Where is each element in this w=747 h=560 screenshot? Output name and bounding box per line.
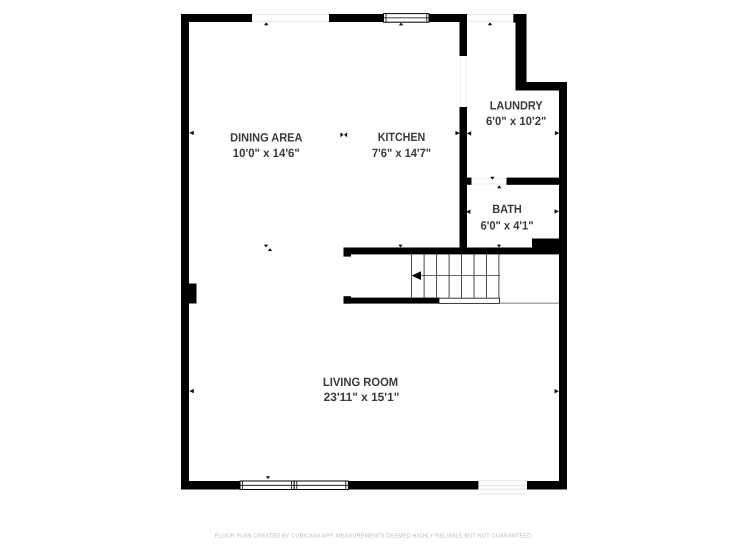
svg-text:10'0" x 14'6": 10'0" x 14'6" [233,146,300,160]
svg-text:FLOOR PLAN CREATED BY CUBICASA: FLOOR PLAN CREATED BY CUBICASA APP. MEAS… [215,533,533,540]
svg-text:LIVING ROOM: LIVING ROOM [323,375,398,389]
svg-text:7'6" x 14'7": 7'6" x 14'7" [372,146,431,160]
svg-text:6'0" x 4'1": 6'0" x 4'1" [481,218,534,232]
svg-text:LAUNDRY: LAUNDRY [490,99,543,113]
svg-text:BATH: BATH [492,202,522,216]
svg-text:DINING AREA: DINING AREA [230,130,303,144]
svg-text:23'11" x 15'1": 23'11" x 15'1" [324,390,400,404]
svg-text:6'0" x 10'2": 6'0" x 10'2" [486,114,547,128]
svg-text:KITCHEN: KITCHEN [378,130,426,144]
